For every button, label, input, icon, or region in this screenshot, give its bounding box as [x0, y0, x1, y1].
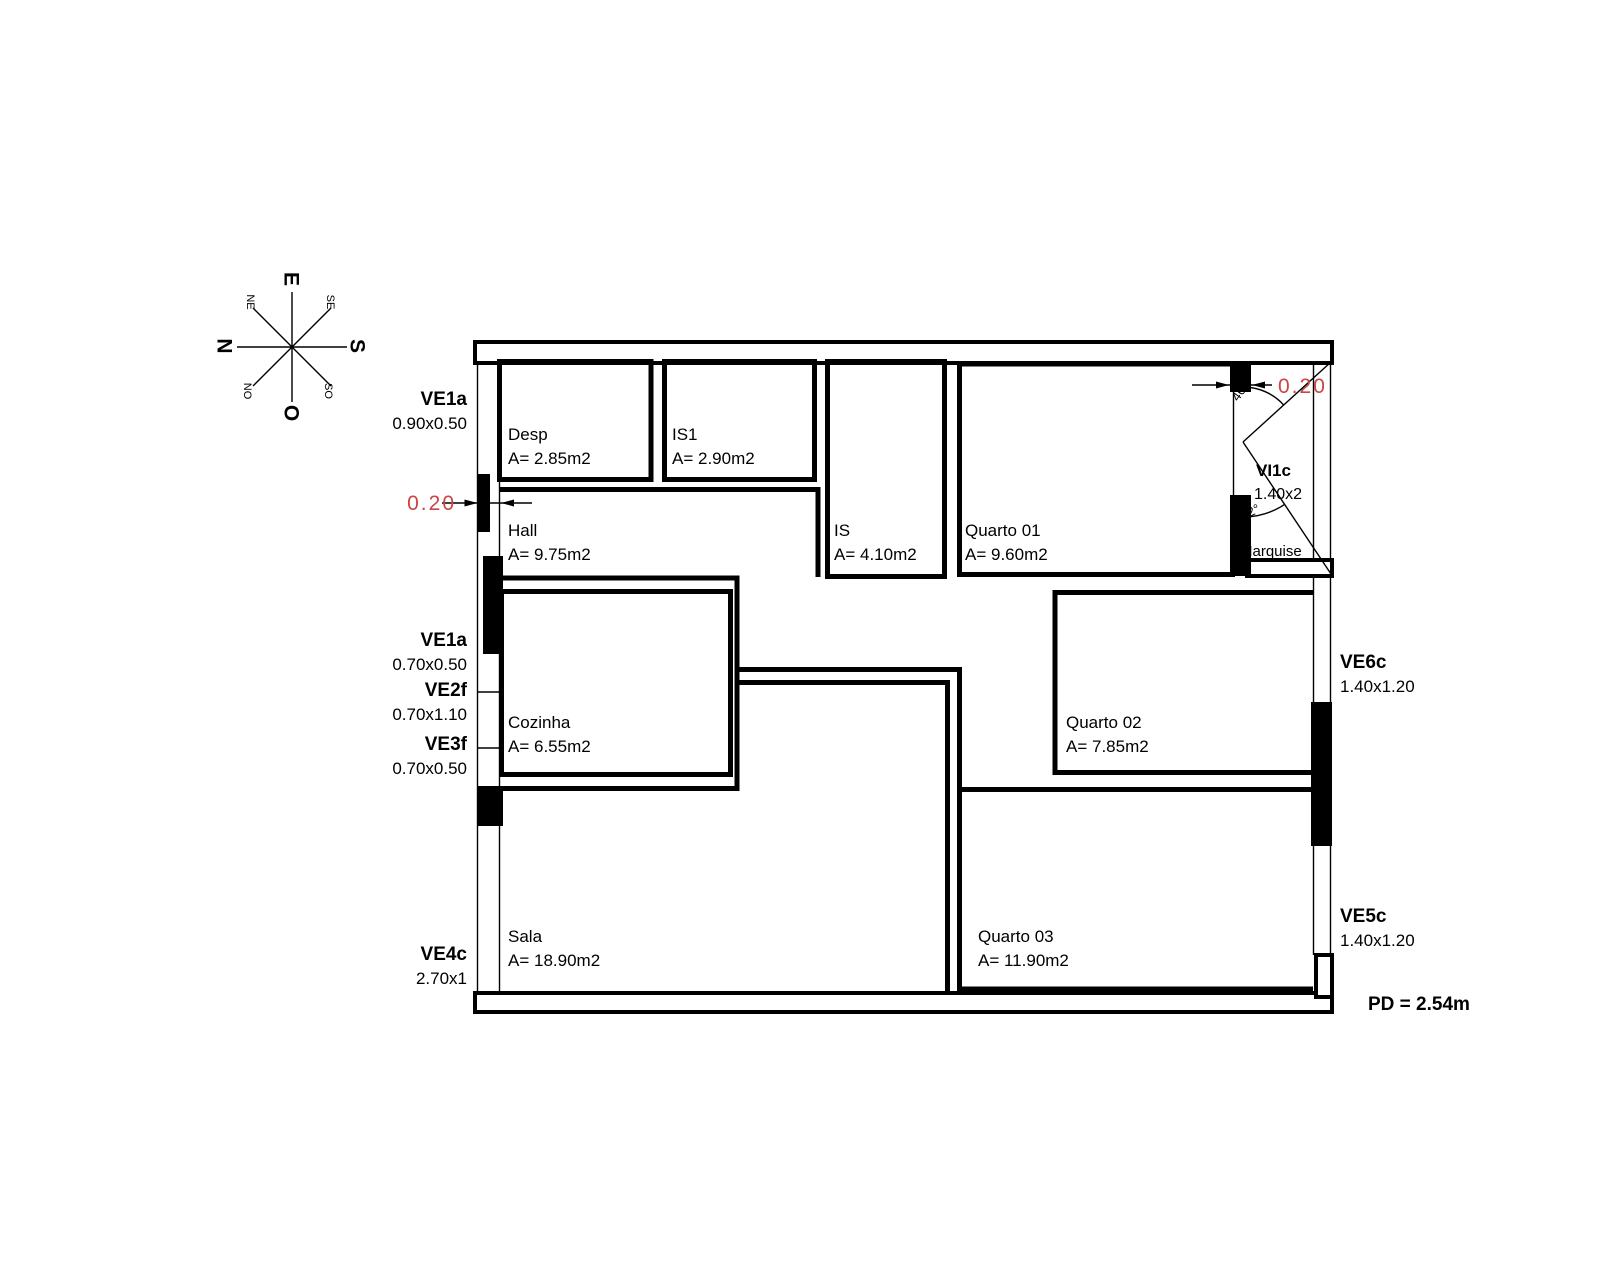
- room-quarto02-name: Quarto 02: [1066, 713, 1142, 732]
- compass-rose: E N S O NE SE NO SO: [213, 272, 369, 421]
- swing-line-upper: [1243, 362, 1331, 442]
- room-desp-area: A= 2.85m2: [508, 449, 591, 468]
- room-quarto03-name: Quarto 03: [978, 927, 1054, 946]
- room-quarto01-area: A= 9.60m2: [965, 545, 1048, 564]
- exterior-walls: [475, 342, 1332, 1012]
- compass-label-ne: NE: [244, 294, 256, 309]
- room-marquise-name: Marquise: [1240, 543, 1302, 560]
- floor-plan-drawing: E N S O NE SE NO SO: [0, 0, 1600, 1280]
- ceiling-height-note: PD = 2.54m: [1368, 994, 1470, 1015]
- room-quarto01-name: Quarto 01: [965, 521, 1041, 540]
- ve1a-mid-size: 0.70x0.50: [392, 655, 467, 674]
- wall-thickness-right-label: 0.20: [1278, 375, 1327, 398]
- ve4c-size: 2.70x1: [416, 969, 467, 988]
- hall-walls: [500, 487, 818, 684]
- interior-walls: [477, 362, 1313, 994]
- ve2f-size: 0.70x1.10: [392, 705, 467, 724]
- room-cozinha-name: Cozinha: [508, 713, 571, 732]
- ve3f-code: VE3f: [425, 734, 468, 755]
- right-wall-segment: [1311, 702, 1332, 846]
- ve6c-code: VE6c: [1340, 652, 1387, 673]
- room-labels: Desp A= 2.85m2 IS1 A= 2.90m2 IS A= 4.10m…: [508, 425, 1302, 970]
- ve2f-code: VE2f: [425, 680, 468, 701]
- vi1c-size: 1.40x2: [1254, 486, 1302, 503]
- room-is1-name: IS1: [672, 425, 698, 444]
- room-is-name: IS: [834, 521, 850, 540]
- dim-arrow-left-a: [465, 500, 478, 507]
- vi1c-code: VI1c: [1256, 461, 1291, 480]
- room-quarto01-outline: [960, 364, 1233, 575]
- room-is1-area: A= 2.90m2: [672, 449, 755, 468]
- bottom-right-corner-wall: [1316, 955, 1332, 997]
- room-hall-name: Hall: [508, 521, 537, 540]
- wall-thickness-left-label: 0.20: [407, 492, 456, 515]
- compass-label-e: E: [280, 272, 303, 286]
- room-cozinha-area: A= 6.55m2: [508, 737, 591, 756]
- room-is-area: A= 4.10m2: [834, 545, 917, 564]
- compass-label-s: S: [346, 339, 369, 353]
- left-opening-labels: VE1a 0.90x0.50 VE1a 0.70x0.50 VE2f 0.70x…: [392, 389, 467, 988]
- ve1a-mid-code: VE1a: [421, 630, 468, 651]
- compass-label-n: N: [213, 338, 236, 353]
- dim-arrow-right-a: [1216, 382, 1229, 389]
- right-opening-labels: VE6c 1.40x1.20 VE5c 1.40x1.20: [1340, 652, 1415, 950]
- dim-arrow-left-b: [501, 500, 514, 507]
- floor-plan-page: E N S O NE SE NO SO: [0, 0, 1600, 1280]
- dimension-right: 0.20: [1192, 375, 1327, 398]
- ve1a-top-size: 0.90x0.50: [392, 414, 467, 433]
- bottom-wall: [475, 993, 1332, 1012]
- compass-label-no: NO: [241, 383, 253, 400]
- ve6c-size: 1.40x1.20: [1340, 677, 1415, 696]
- left-wall-stub-lower: [477, 788, 503, 826]
- ve1a-top-code: VE1a: [421, 389, 468, 410]
- room-sala-name: Sala: [508, 927, 543, 946]
- corridor-wall: [739, 670, 960, 993]
- marquise-bottom-wall: [1247, 560, 1332, 576]
- compass-label-o: O: [280, 405, 303, 421]
- room-hall-area: A= 9.75m2: [508, 545, 591, 564]
- ve3f-size: 0.70x0.50: [392, 759, 467, 778]
- ve4c-code: VE4c: [421, 944, 468, 965]
- room-desp-name: Desp: [508, 425, 548, 444]
- ve5c-code: VE5c: [1340, 906, 1387, 927]
- right-window-glass-lines: [1314, 363, 1331, 955]
- dimension-left: 0.20: [407, 492, 532, 515]
- ve5c-size: 1.40x1.20: [1340, 931, 1415, 950]
- compass-label-so: SO: [322, 383, 334, 399]
- room-quarto02-area: A= 7.85m2: [1066, 737, 1149, 756]
- left-window-glass-lines: [477, 363, 500, 993]
- room-sala-area: A= 18.90m2: [508, 951, 600, 970]
- room-quarto03-area: A= 11.90m2: [978, 951, 1069, 970]
- compass-label-se: SE: [324, 295, 336, 310]
